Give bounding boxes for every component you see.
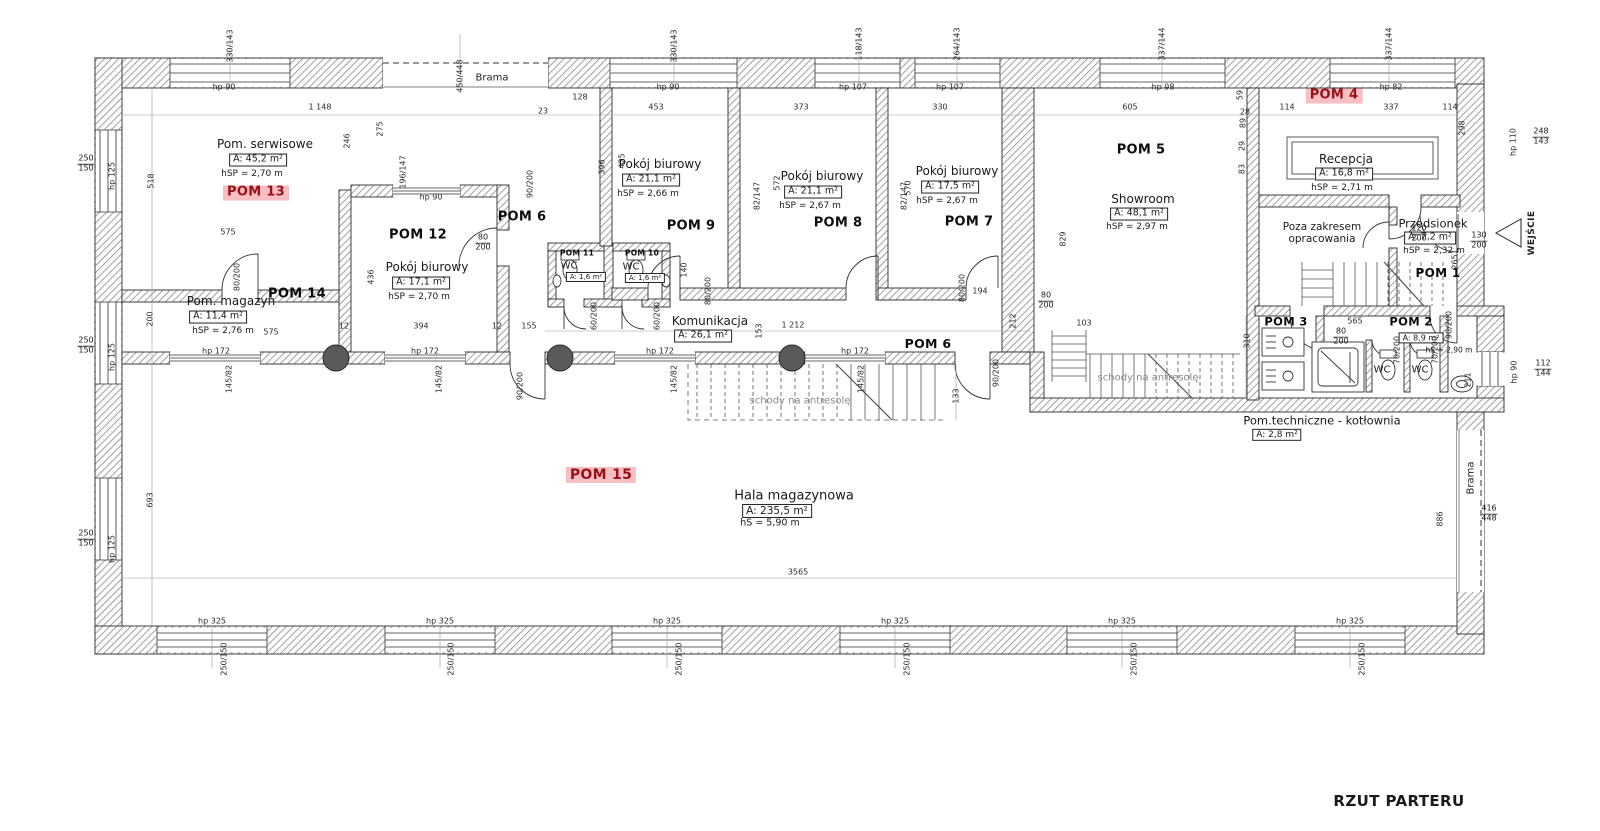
dim-label-35: 436 [366,269,375,284]
room-area-pom10: A: 1,6 m² [625,273,665,283]
dim-label-73: hp 172 [411,346,439,355]
dim-label-96: 416448 [1480,505,1497,524]
dim-label-62: 140 [679,262,688,277]
room-area-pom9: A: 21,1 m² [622,174,680,187]
dim-label-27: hp 125 [107,162,116,190]
dim-label-77: 145/82 [434,365,443,393]
room-name-komunikacja: Komunikacja [672,315,748,329]
room-area-pom12: A: 17,1 m² [392,277,450,290]
room-area-pom4: A: 16,8 m² [1315,168,1373,181]
room-name-wc-left: WC [1374,364,1391,376]
room-badge-pom2: POM 2 [1389,315,1432,328]
dim-label-6: 605 [1122,102,1137,111]
dim-label-31: 200 [145,311,154,326]
dim-label-40: 829 [1058,231,1067,246]
room-badge-pom8: POM 8 [814,217,863,232]
room-name-pom12: Pokój biurowy [386,261,469,275]
dim-bottom: 200 [475,244,490,253]
room-height-pom4: hSP = 2,71 m [1311,183,1373,193]
dim-label-12: 450/448 [455,59,464,92]
dim-label-98: hp 325 [198,616,226,625]
room-height-pom14: hSP = 2,76 m [192,326,254,336]
dim-label-18: hp 90 [213,82,236,91]
dim-label-23: hp 82 [1380,82,1403,91]
dim-bottom: 200 [1410,235,1427,244]
dim-label-63: 194 [972,286,987,295]
dim-label-3: 453 [648,102,663,111]
dim-label-107: 250/150 [902,642,911,675]
room-badge-pom6-upper: POM 6 [498,211,547,226]
dim-label-106: 250/150 [674,642,683,675]
room-badge-pom13: POM 13 [223,186,289,201]
room-name-pom14: Pom. magazyn [187,295,276,309]
room-badge-pom3: POM 3 [1264,315,1307,328]
room-height-pom8: hSP = 2,67 m [779,201,841,211]
dim-bottom: 150 [77,540,94,549]
room-name-pom10: WC [623,261,640,273]
dim-label-99: hp 325 [426,616,454,625]
dim-label-103: hp 325 [1336,616,1364,625]
dim-label-88: 80200 [1333,328,1348,347]
room-badge-pom11: POM 11 [560,250,594,259]
dim-label-55: 80/200 [232,263,241,291]
room-area-pom7: A: 17,5 m² [921,181,979,194]
dim-bottom: 448 [1480,515,1497,524]
room-area-komunikacja: A: 26,1 m² [674,330,732,343]
dim-label-19: hp 90 [657,82,680,91]
dim-label-2: 128 [572,92,587,101]
room-name-pom8: Pokój biurowy [781,170,864,184]
room-area-pom5: A: 48,1 m² [1110,208,1168,221]
room-name-pom7: Pokój biurowy [916,165,999,179]
dim-label-42: 89 [1238,118,1247,128]
dim-label-89: 70/200 [1392,336,1401,364]
dim-label-109: 250/150 [1357,642,1366,675]
dim-label-67: 394 [413,321,428,330]
room-badge-pom7: POM 7 [945,216,994,231]
room-badge-pom9: POM 9 [667,220,716,235]
dim-label-10: 114 [1442,102,1457,111]
dim-bottom: 150 [77,347,94,356]
dim-label-83: 103 [1076,318,1091,327]
room-name-poza-zakresem: Poza zakresem opracowania [1283,221,1361,245]
dim-bottom: 200 [1470,242,1487,251]
dim-label-41: 59 [1235,90,1244,100]
dim-label-108: 250/150 [1129,642,1138,675]
room-name-pom11: WC [561,260,578,272]
dim-label-46: 248143 [1532,128,1549,147]
dim-label-25: 250150 [77,337,94,356]
dim-label-61: 60/200 [652,302,661,330]
dim-label-57: 82/147 [899,182,908,210]
annotation-4: schody na antresolę [1098,372,1199,384]
annotation-1: Brama [1465,462,1477,495]
dim-label-1: 23 [538,106,548,115]
dim-label-50: 265 [1450,254,1459,269]
dim-label-33: 275 [375,121,384,136]
dim-label-76: 145/82 [224,365,233,393]
dim-label-65: 575 [263,327,278,336]
dim-label-9: 337 [1383,102,1398,111]
room-height-pom9: hSP = 2,66 m [617,189,679,199]
dim-label-78: 145/82 [669,365,678,393]
room-name-pom15: Hala magazynowa [734,490,854,505]
dim-label-11: 330/143 [225,29,234,62]
dim-label-93: hp 90 [1509,361,1518,384]
dim-label-79: 145/82 [856,365,865,393]
room-height-pom13: hSP = 2,70 m [221,169,283,179]
dim-label-81: 90/200 [991,359,1000,387]
room-name-pom13: Pom. serwisowe [217,138,313,152]
dim-label-13: 330/143 [669,29,678,62]
dim-label-45: 298 [1457,120,1466,135]
dim-label-91: 90/200 [1444,311,1453,339]
dim-label-20: hp 107 [839,82,867,91]
dim-label-37: 425 [617,153,626,168]
dim-label-0: 1 148 [309,102,332,111]
dim-label-22: hp 98 [1152,82,1175,91]
dim-label-16: 337/144 [1157,27,1166,60]
dim-bottom: 144 [1534,370,1551,379]
room-badge-pom10: POM 10 [625,250,659,259]
room-name-pom9: Pokój biurowy [619,158,702,172]
dim-label-69: 155 [521,321,536,330]
annotation-0: Brama [476,72,509,84]
dim-label-24: 250150 [77,155,94,174]
dim-label-72: hp 172 [202,346,230,355]
dim-label-34: 246 [342,133,351,148]
dim-label-105: 250/150 [446,642,455,675]
dim-label-14: 118/143 [854,27,863,60]
dim-label-4: 373 [793,102,808,111]
dim-label-70: 153 [754,323,763,338]
dim-label-49: 130200 [1470,232,1487,251]
room-name-pom4: Recepcja [1319,153,1373,167]
room-name-pom5: Showroom [1111,193,1174,207]
dim-label-100: hp 325 [653,616,681,625]
room-area-kotlownia: A: 2,8 m² [1252,429,1301,441]
dim-label-60: 60/200 [589,302,598,330]
dim-label-52: hp 90 [420,192,443,201]
dim-label-29: hp 125 [107,535,116,563]
dim-label-95: 886 [1435,511,1444,526]
dim-label-94: 112144 [1534,360,1551,379]
dim-label-66: 12 [339,321,349,330]
drawing-title: RZUT PARTERU [1333,792,1464,810]
dim-label-26: 250150 [77,530,94,549]
room-area-pom14: A: 11,4 m² [189,311,247,324]
dim-label-59: 80/200 [957,274,966,302]
dim-label-56: 82/147 [752,182,761,210]
dim-label-15: 264/143 [952,27,961,60]
room-height-pom5: hSP = 2,97 m [1106,222,1168,232]
dim-label-51: 196/147 [398,155,407,188]
dim-label-80: 90/200 [515,372,524,400]
dim-label-84: 310 [1242,333,1251,348]
room-badge-komunikacja: POM 6 [905,337,952,351]
dim-label-74: hp 172 [646,346,674,355]
dim-label-28: hp 125 [107,343,116,371]
dim-label-75: hp 172 [841,346,869,355]
dim-label-97: 3565 [788,567,808,576]
dim-label-47: hp 110 [1508,128,1517,156]
dim-label-48: 120200 [1410,225,1427,244]
dim-label-8: 114 [1279,102,1294,111]
annotation-2: WEJŚCIE [1527,211,1537,256]
dim-label-86: 80200 [1038,292,1053,311]
dim-label-90: 70/200 [1430,336,1439,364]
labels-layer: POM 13Pom. serwisoweA: 45,2 m²hSP = 2,70… [0,0,1600,831]
dim-label-82: 212 [1008,313,1017,328]
dim-label-101: hp 325 [881,616,909,625]
room-badge-pom15: POM 15 [566,467,636,483]
dim-label-68: 12 [492,321,502,330]
room-height-pom12: hSP = 2,70 m [388,292,450,302]
room-area-pom15: A: 235,5 m² [742,504,812,518]
room-badge-pom12: POM 12 [389,229,447,244]
dim-bottom: 200 [1333,338,1348,347]
dim-label-64: 575 [220,227,235,236]
room-area-pom11: A: 1,6 m² [566,272,606,282]
dim-label-32: 693 [145,492,154,507]
dim-label-17: 337/144 [1384,27,1393,60]
room-area-pom13: A: 45,2 m² [229,154,287,167]
dim-label-104: 250/150 [219,642,228,675]
room-badge-pom14: POM 14 [268,288,326,303]
room-name-kotlownia: Pom.techniczne - kotłownia [1243,414,1400,427]
dim-label-43: 29 [1237,141,1246,151]
room-area-pom8: A: 21,1 m² [784,186,842,199]
dim-bottom: 143 [1532,138,1549,147]
dim-label-54: 80200 [475,234,490,253]
dim-label-53: 90/200 [525,170,534,198]
dim-label-21: hp 107 [936,82,964,91]
room-height-pom15: hS = 5,90 m [740,519,799,530]
dim-label-30: 518 [146,173,155,188]
dim-label-38: 572 [772,175,781,190]
dim-label-7: 28 [1240,107,1250,116]
room-height-pom7: hSP = 2,67 m [916,196,978,206]
annotation-3: schody na antresolę [750,395,851,407]
room-name-wc-right: WC [1412,364,1429,376]
dim-label-5: 330 [932,102,947,111]
floor-plan-canvas: POM 13Pom. serwisoweA: 45,2 m²hSP = 2,70… [0,0,1600,831]
room-badge-pom4: POM 4 [1306,89,1363,104]
dim-bottom: 200 [1038,302,1053,311]
room-name-pom1: Przedsionek [1398,217,1467,230]
dim-label-87: 565 [1347,316,1362,325]
dim-label-102: hp 325 [1108,616,1136,625]
dim-label-92: 211 [1463,372,1472,387]
dim-bottom: 150 [77,165,94,174]
dim-label-71: 1 212 [782,320,805,329]
dim-label-58: 80/200 [703,277,712,305]
room-badge-pom5: POM 5 [1117,144,1166,159]
dim-label-36: 396 [597,159,606,174]
dim-label-44: 83 [1237,164,1246,174]
dim-label-85: 133 [951,388,960,403]
